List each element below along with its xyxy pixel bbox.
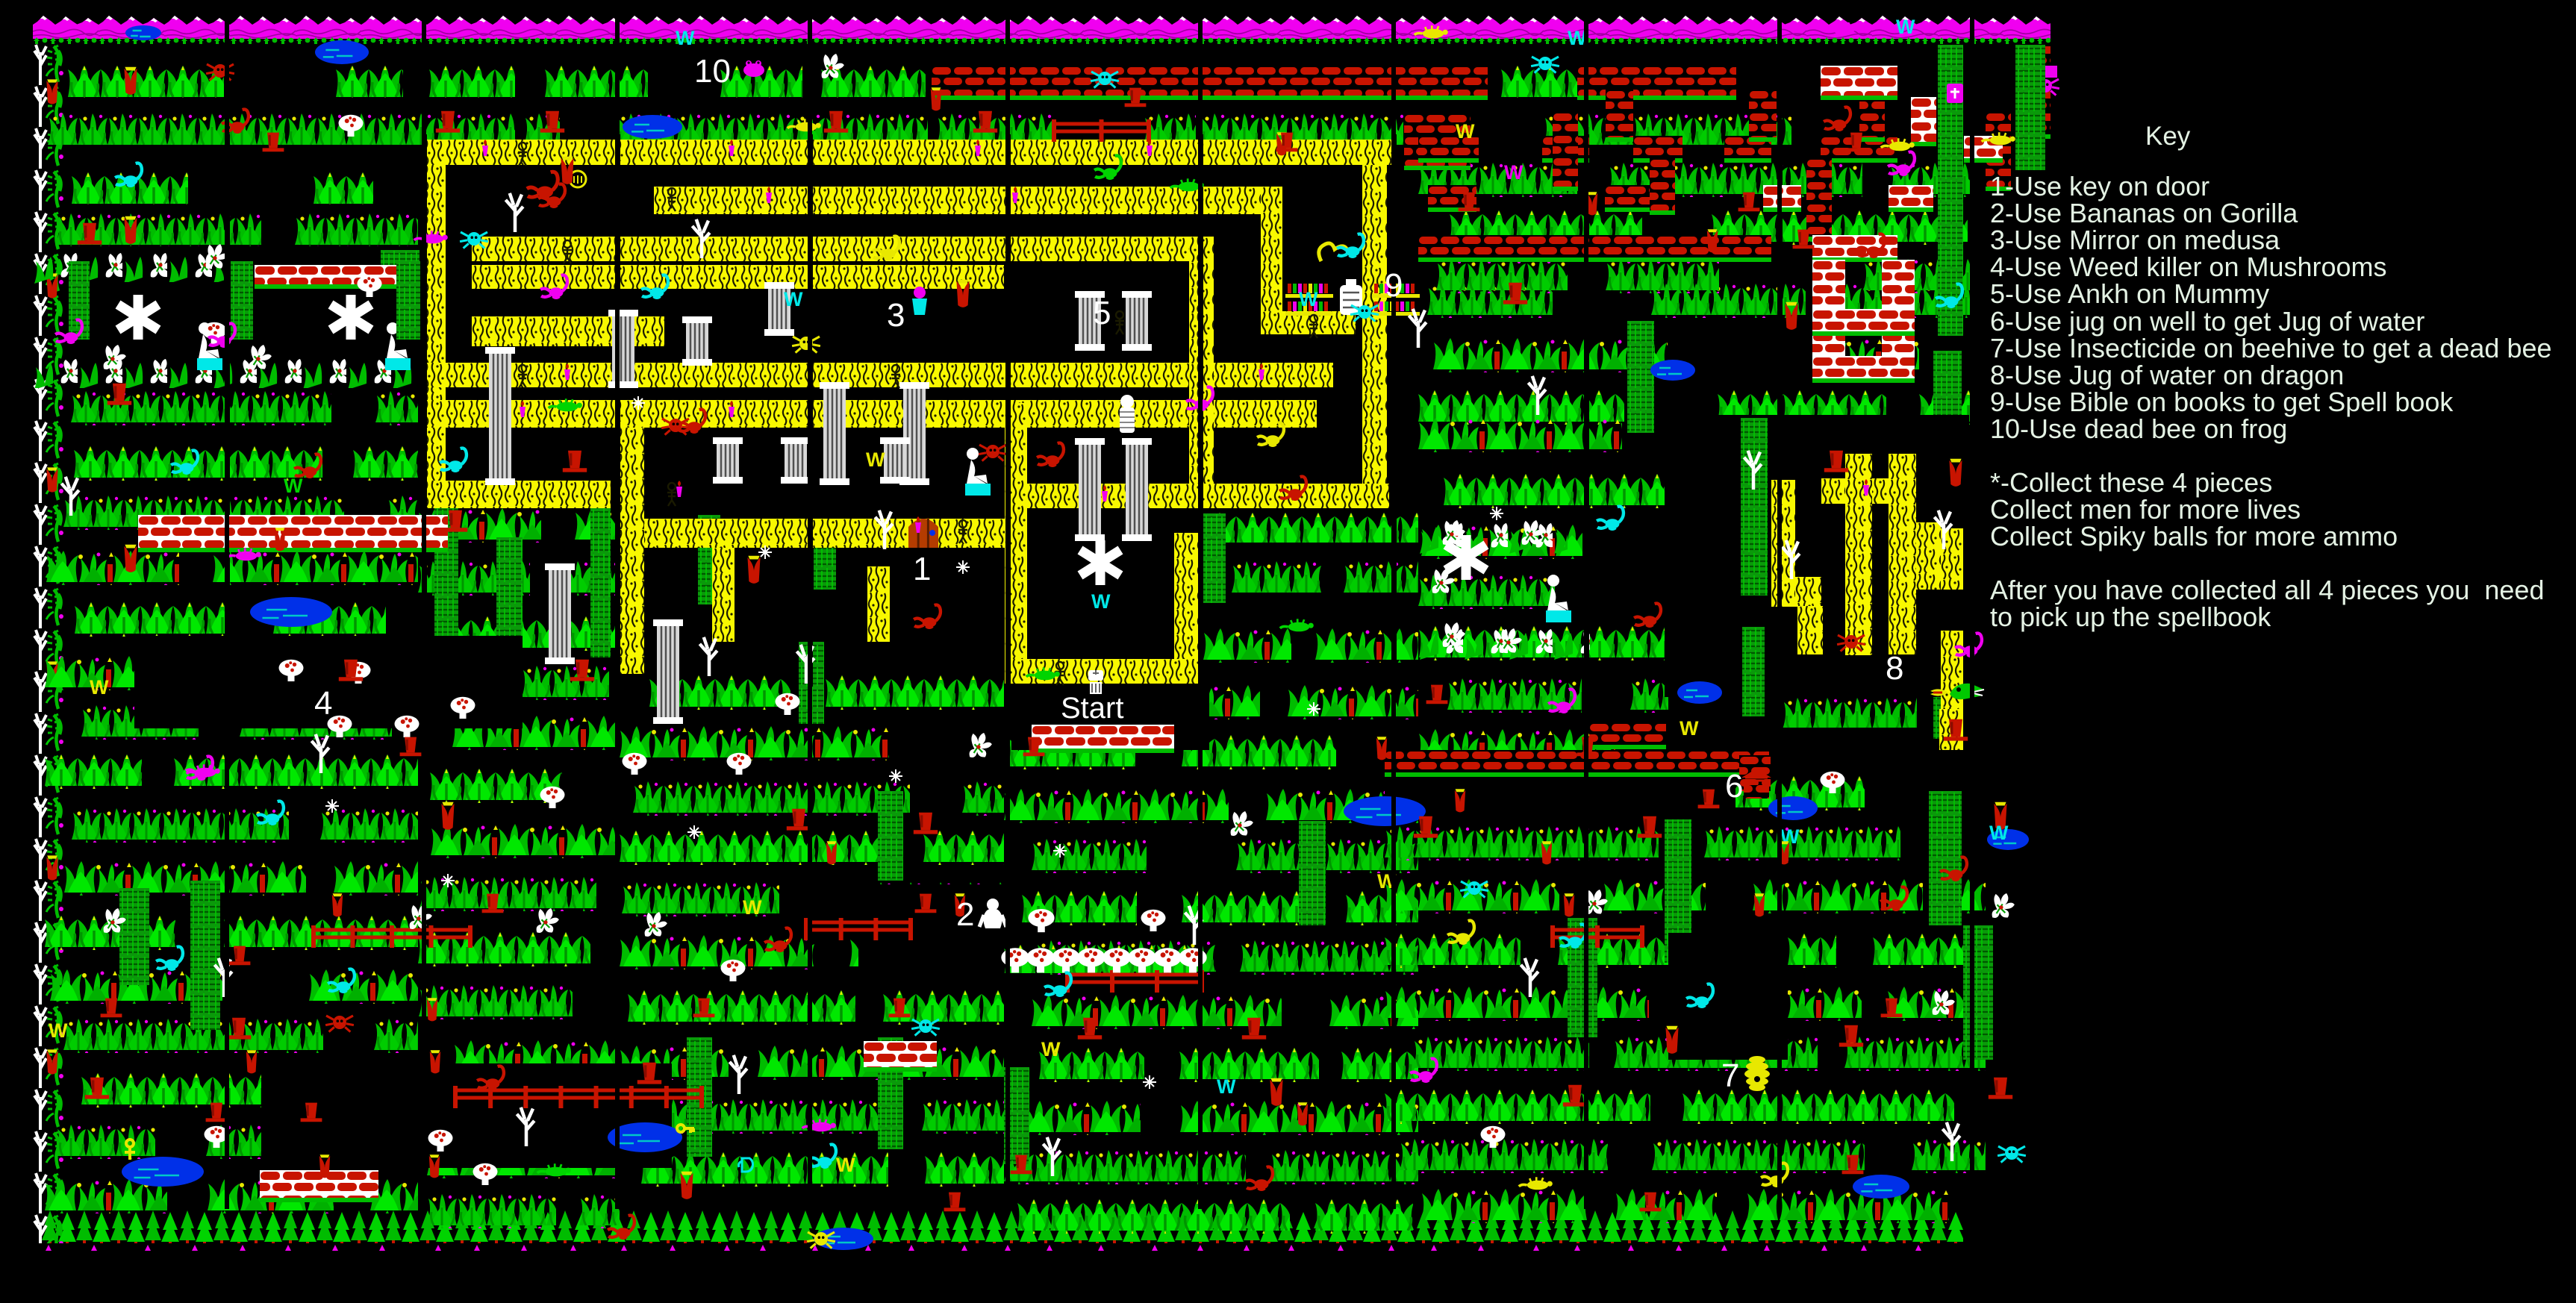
svg-text:4: 4 <box>314 685 332 722</box>
svg-text:Start: Start <box>1061 692 1123 725</box>
svg-text:After you have collected all 4: After you have collected all 4 pieces yo… <box>1990 575 2544 605</box>
svg-text:W: W <box>743 896 762 919</box>
svg-text:W: W <box>1989 822 2009 844</box>
svg-text:8-Use Jug of water on dragon: 8-Use Jug of water on dragon <box>1990 360 2344 390</box>
svg-text:6-Use jug on well to get Jug o: 6-Use jug on well to get Jug of water <box>1990 306 2424 337</box>
svg-text:10: 10 <box>694 53 731 90</box>
svg-text:W: W <box>1680 717 1699 740</box>
svg-text:W: W <box>49 1019 68 1042</box>
svg-text:9-Use Bible on books to get Sp: 9-Use Bible on books to get Spell book <box>1990 387 2454 417</box>
svg-text:W: W <box>1299 288 1318 310</box>
svg-text:Key: Key <box>2145 122 2191 151</box>
svg-text:W: W <box>1091 590 1111 613</box>
svg-text:W: W <box>1217 1075 1236 1098</box>
svg-text:W: W <box>1780 825 1800 848</box>
svg-text:W: W <box>90 676 109 699</box>
svg-text:W: W <box>1504 161 1524 184</box>
svg-text:W: W <box>1041 1038 1061 1060</box>
svg-text:W: W <box>676 27 695 49</box>
svg-text:*-Collect these 4 pieces: *-Collect these 4 pieces <box>1990 467 2272 498</box>
svg-text:7-Use Insecticide on beehive t: 7-Use Insecticide on beehive to get a de… <box>1990 333 2552 363</box>
svg-text:5-Use Ankh on Mummy: 5-Use Ankh on Mummy <box>1990 278 2269 309</box>
svg-text:3: 3 <box>887 297 905 334</box>
svg-text:1: 1 <box>913 551 931 587</box>
svg-text:W: W <box>284 475 303 497</box>
svg-text:to pick up the spellbook: to pick up the spellbook <box>1990 601 2271 632</box>
svg-text:Collect Spiky balls for more a: Collect Spiky balls for more ammo <box>1990 521 2398 551</box>
svg-text:7: 7 <box>1721 1057 1739 1094</box>
svg-text:W: W <box>1896 16 1915 38</box>
svg-text:W: W <box>1456 120 1475 143</box>
svg-text:W: W <box>836 1154 855 1176</box>
svg-text:Collect men for more lives: Collect men for more lives <box>1990 494 2301 525</box>
svg-text:8: 8 <box>1886 650 1903 687</box>
svg-text:1-Use key on door: 1-Use key on door <box>1990 171 2209 201</box>
svg-text:2: 2 <box>956 896 974 933</box>
svg-text:6: 6 <box>1725 768 1743 804</box>
svg-text:5: 5 <box>1093 295 1111 331</box>
svg-text:2-Use Bananas on Gorilla: 2-Use Bananas on Gorilla <box>1990 198 2298 228</box>
svg-text:W: W <box>784 288 803 310</box>
svg-text:W: W <box>866 449 885 471</box>
svg-text:9: 9 <box>1385 267 1403 304</box>
svg-text:3-Use Mirror on medusa: 3-Use Mirror on medusa <box>1990 225 2280 255</box>
svg-text:4-Use Weed killer on Mushrooms: 4-Use Weed killer on Mushrooms <box>1990 251 2387 282</box>
svg-text:10-Use dead bee on frog: 10-Use dead bee on frog <box>1990 413 2287 444</box>
